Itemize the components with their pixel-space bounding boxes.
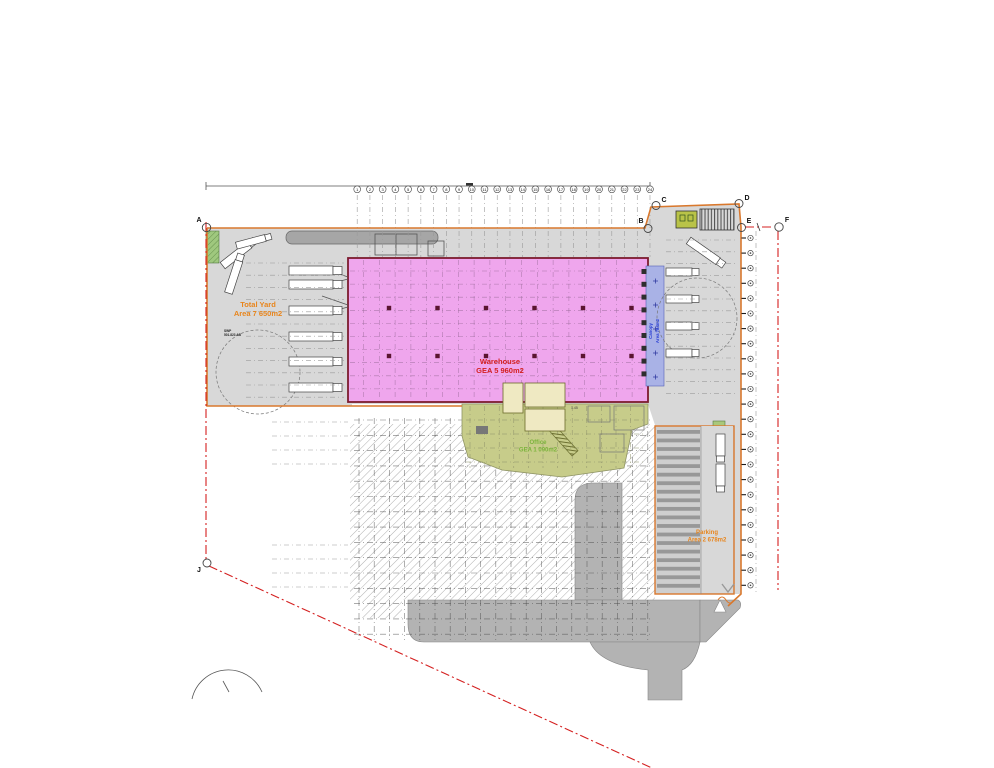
column-marker <box>629 306 633 310</box>
site-plan-canvas: 123456789101112131415161718192021222324 … <box>0 0 994 768</box>
marker-f: F <box>785 217 790 224</box>
landscape-strip <box>206 231 219 263</box>
parking-bay <box>657 456 700 460</box>
parking-bay <box>657 507 700 511</box>
parking-bay <box>657 481 700 485</box>
column-marker <box>435 306 439 310</box>
office-label-1: Office <box>529 440 547 446</box>
road-funnel <box>590 642 700 700</box>
canopy-label-1: Canopy <box>648 323 653 339</box>
marker-e: E <box>747 218 752 225</box>
west-canopy-bar <box>286 231 438 244</box>
total-yard-label-1: Total Yard <box>240 300 276 309</box>
level-marker: 1.45 <box>571 406 578 410</box>
column-marker <box>435 354 439 358</box>
parking-label-1: Parking <box>696 530 718 536</box>
grid-bubble-label: 24 <box>648 187 653 192</box>
marker-j: J <box>197 567 201 574</box>
access-road <box>575 483 622 600</box>
column-marker <box>484 306 488 310</box>
structural-grid-bubbles: 123456789101112131415161718192021222324 <box>354 186 654 193</box>
road-band <box>408 600 700 642</box>
gatehouse <box>676 211 697 228</box>
column-marker <box>629 354 633 358</box>
grid-bubble-label: 14 <box>520 187 525 192</box>
marker-d: D <box>744 195 749 202</box>
grid-bubble-label: 13 <box>508 187 513 192</box>
survey-note-2: 501.823 AB <box>224 333 242 337</box>
dock-leveller <box>642 320 647 325</box>
dock-leveller <box>642 333 647 338</box>
truck <box>289 357 342 366</box>
dock-leveller <box>642 359 647 364</box>
office-label-2: GEA 1 090m2 <box>519 448 558 454</box>
grid-bubble-label: 22 <box>622 187 627 192</box>
dock-leveller <box>642 282 647 287</box>
grid-bubble-label: 21 <box>610 187 615 192</box>
parking-bay <box>657 558 700 562</box>
dock-leveller <box>642 307 647 312</box>
hatched-zone-ext <box>362 600 402 618</box>
grid-bubble-label: 18 <box>571 187 576 192</box>
truck <box>666 322 699 330</box>
dock-leveller <box>642 269 647 274</box>
marker-b: B <box>638 218 643 225</box>
parking-bay <box>657 430 700 434</box>
grid-bubble-label: 10 <box>470 187 475 192</box>
warehouse-label-2: GEA 5 960m2 <box>476 366 524 375</box>
column-marker <box>532 306 536 310</box>
dock-leveller <box>642 371 647 376</box>
column-marker <box>581 306 585 310</box>
marker-c: C <box>661 197 666 204</box>
parking-bay <box>657 524 700 528</box>
parking-bay <box>657 464 700 468</box>
column-marker <box>581 354 585 358</box>
grid-bubble-label: 12 <box>495 187 500 192</box>
grid-bubble-label: 23 <box>635 187 640 192</box>
dock-leveller <box>642 295 647 300</box>
parking-bay <box>657 490 700 494</box>
dock-leveller <box>642 346 647 351</box>
grid-bubble-label: 16 <box>546 187 551 192</box>
parking-bay <box>657 439 700 443</box>
canopy-label-2: Area 784m2 <box>655 318 660 343</box>
grid-bubble-label: 19 <box>584 187 589 192</box>
survey-arc <box>192 670 262 699</box>
truck <box>716 464 725 492</box>
warehouse-area <box>348 258 648 402</box>
parking-bay <box>657 473 700 477</box>
warehouse-label-1: Warehouse <box>480 357 520 366</box>
parking-bay <box>657 550 700 554</box>
parking-bay <box>657 533 700 537</box>
parking-bay <box>657 575 700 579</box>
column-marker <box>532 354 536 358</box>
site-plan-drawing: 123456789101112131415161718192021222324 … <box>0 0 994 768</box>
parking-bay <box>657 567 700 571</box>
cycle-shelter <box>700 209 734 230</box>
column-marker <box>387 306 391 310</box>
parking-bay <box>657 516 700 520</box>
grid-bubble-label: 17 <box>559 187 564 192</box>
grid-bubble-label: 20 <box>597 187 602 192</box>
edge-markers <box>742 235 754 588</box>
truck <box>666 349 699 357</box>
parking-bay <box>657 584 700 588</box>
truck <box>289 266 342 275</box>
parking-bay <box>657 498 700 502</box>
truck <box>716 434 725 462</box>
truck <box>289 383 342 392</box>
total-yard-label-2: Area 7 650m2 <box>234 309 282 318</box>
truck <box>666 268 699 276</box>
marker-a: A <box>196 217 201 224</box>
column-marker <box>387 354 391 358</box>
parking-bay <box>657 447 700 451</box>
grid-bubble-label: 15 <box>533 187 538 192</box>
truck <box>289 306 342 315</box>
parking-label-2: Area 2 678m2 <box>688 538 727 544</box>
